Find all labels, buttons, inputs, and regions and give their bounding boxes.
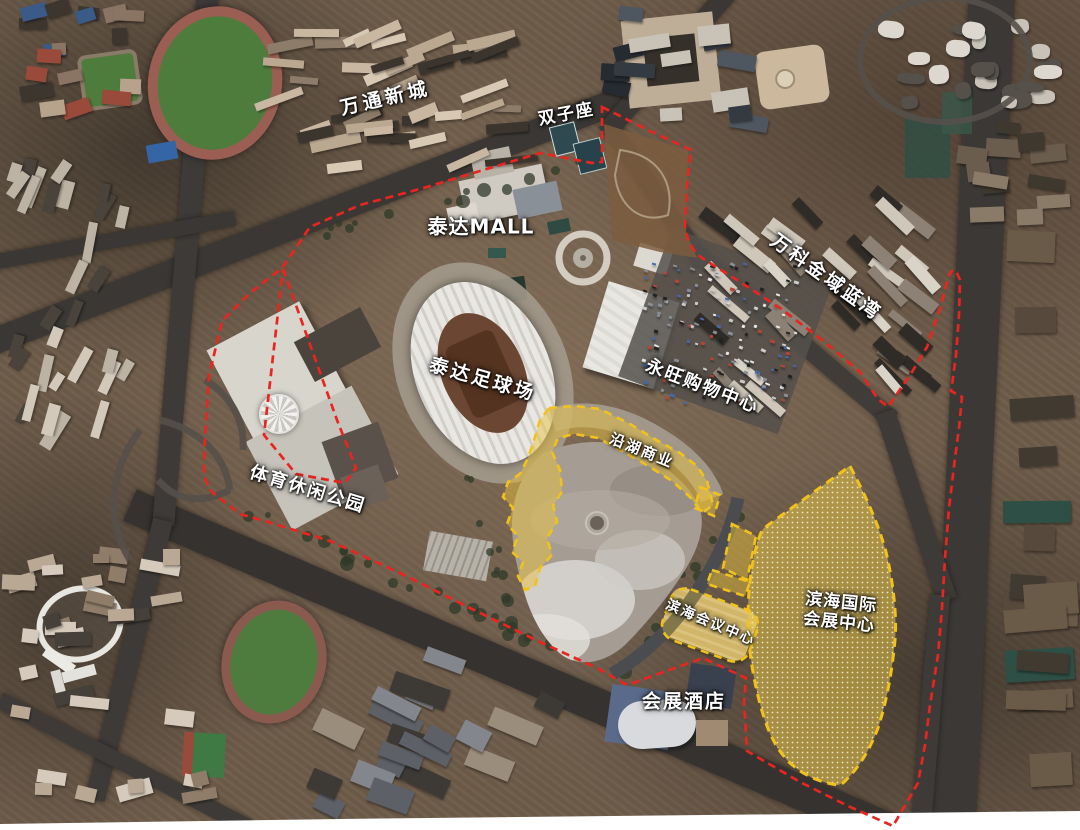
satellite-map: 万通新城 双子座 泰达MALL 万科金域蓝湾 泰达足球场 永旺购物中心 沿湖商业…	[0, 0, 1080, 830]
label-teda-mall: 泰达MALL	[428, 211, 535, 240]
label-exhibition-hotel: 会展酒店	[642, 687, 726, 714]
label-binhai-intl-exhibition-center: 滨海国际 会展中心	[802, 589, 878, 637]
